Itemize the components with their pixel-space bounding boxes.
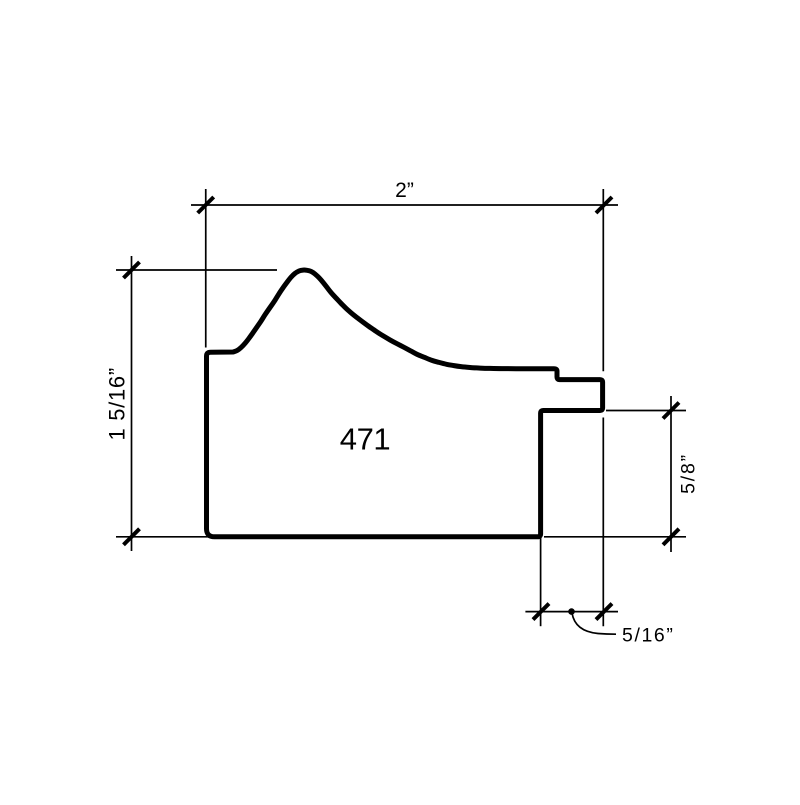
svg-text:5/8”: 5/8” xyxy=(678,453,700,494)
svg-text:2”: 2” xyxy=(395,179,414,202)
svg-text:5/16”: 5/16” xyxy=(622,624,674,646)
svg-text:1 5/16”: 1 5/16” xyxy=(104,367,129,440)
svg-text:471: 471 xyxy=(340,422,391,457)
